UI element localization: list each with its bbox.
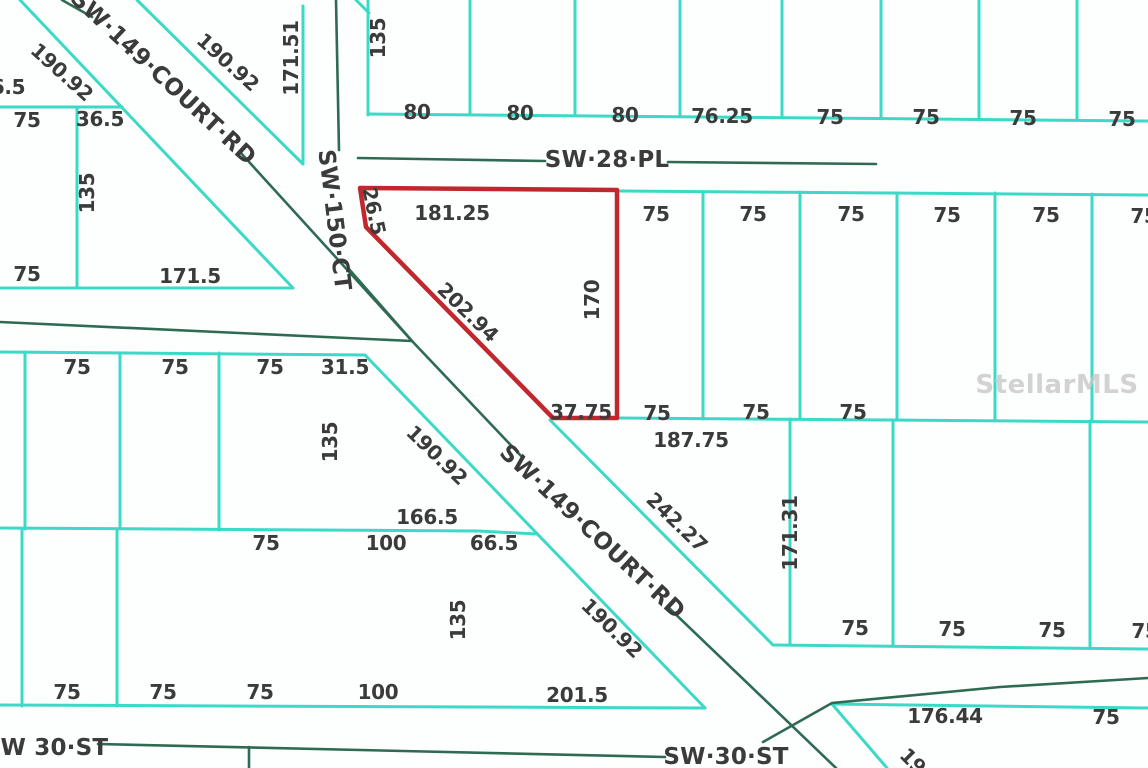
lot-dimension-label: 75: [1130, 204, 1148, 228]
lot-dimension-label: 176.44: [907, 704, 982, 728]
watermark: StellarMLS: [975, 370, 1138, 400]
lot-dimension-label: 190.92: [402, 420, 473, 490]
lot-dimension-label: 181.25: [414, 201, 489, 225]
street-name-label: SW·30·ST: [663, 744, 788, 768]
lot-dimension-label: 75: [161, 355, 188, 379]
lot-dimension-label: 75: [1038, 618, 1065, 642]
lot-dimension-label: 75: [13, 108, 40, 132]
lot-dimension-label: 26.5: [357, 185, 390, 237]
lot-dimension-label: 75: [816, 105, 843, 129]
lot-dimension-label: 170: [580, 280, 604, 321]
lot-dimension-label: 75: [742, 400, 769, 424]
lot-dimension-label: 135: [366, 18, 390, 59]
street-name-label: SW·28·PL: [545, 147, 670, 173]
lot-dimension-label: 66.5: [470, 531, 518, 555]
lot-dimension-label: 135: [75, 173, 99, 214]
lot-dimension-label: 6.5: [0, 75, 25, 99]
lot-dimension-label: 190.92: [577, 593, 648, 663]
lot-dimension-label: 75: [252, 531, 279, 555]
lot-dimension-label: 171.5: [159, 264, 221, 288]
lot-dimension-label: 190.92: [26, 38, 98, 106]
lot-dimension-label: 75: [642, 202, 669, 226]
street-name-label: SW 30·ST: [0, 735, 108, 761]
lot-dimension-label: 201.5: [546, 683, 608, 707]
lot-dimension-label: 75: [63, 355, 90, 379]
lot-dimension-label: 76.25: [691, 104, 753, 128]
lot-dimension-label: 75: [1108, 107, 1135, 131]
lot-dimension-label: 80: [403, 100, 430, 124]
lot-dimension-label: 37.75: [550, 400, 612, 424]
lot-dimension-label: 135: [446, 600, 470, 641]
lot-dimension-label: 75: [13, 262, 40, 286]
lot-dimension-label: 80: [506, 101, 533, 125]
lot-dimension-label: 75: [739, 202, 766, 226]
lot-dimension-label: 166.5: [396, 505, 458, 529]
lot-dimension-label: 75: [839, 400, 866, 424]
lot-dimension-label: 31.5: [321, 355, 369, 379]
lot-dimension-label: 171.51: [279, 20, 303, 95]
lot-dimension-label: 19: [895, 743, 931, 768]
lot-dimension-label: 187.75: [653, 428, 728, 452]
lot-dimension-label: 75: [1032, 203, 1059, 227]
lot-dimension-label: 80: [611, 103, 638, 127]
lot-dimension-label: 190.92: [192, 28, 264, 96]
lot-dimension-label: 75: [938, 617, 965, 641]
lot-dimension-label: 171.31: [778, 495, 802, 570]
lot-dimension-label: 75: [841, 616, 868, 640]
lot-dimension-label: 75: [246, 680, 273, 704]
street-name-label: SW·150·CT: [312, 148, 355, 292]
lot-dimension-label: 75: [256, 355, 283, 379]
lot-dimension-label: 242.27: [642, 487, 713, 557]
lot-dimension-label: 202.94: [433, 277, 504, 347]
lot-dimension-label: 75: [837, 202, 864, 226]
lot-dimension-label: 135: [318, 422, 342, 463]
lot-dimension-label: 100: [366, 531, 407, 555]
lot-dimension-label: 100: [358, 680, 399, 704]
lot-dimension-label: 75: [933, 203, 960, 227]
lot-dimension-label: 75: [149, 680, 176, 704]
lot-dimension-label: 75: [1092, 705, 1119, 729]
lot-dimension-label: 36.5: [76, 107, 124, 131]
lot-dimension-label: 75: [643, 401, 670, 425]
lot-dimension-label: 75: [1131, 619, 1148, 643]
lot-dimension-label: 75: [912, 105, 939, 129]
plat-map: SW·149·COURT·RDSW·150·CTSW·28·PLSW·149·C…: [0, 0, 1148, 768]
lot-dimension-label: 75: [53, 680, 80, 704]
lot-dimension-label: 75: [1009, 106, 1036, 130]
